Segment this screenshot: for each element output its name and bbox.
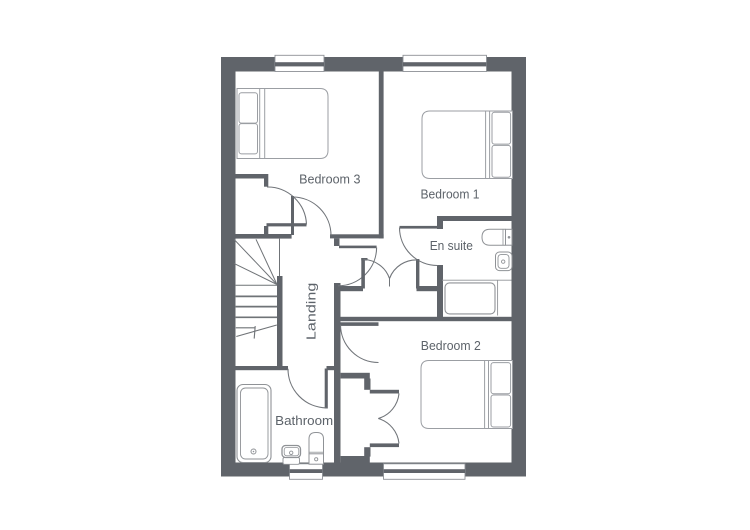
svg-text:En suite: En suite [430, 239, 473, 253]
svg-text:Landing: Landing [305, 283, 319, 340]
svg-text:Bedroom 3: Bedroom 3 [299, 172, 360, 186]
svg-text:Bedroom 1: Bedroom 1 [421, 188, 480, 202]
svg-text:Bedroom 2: Bedroom 2 [421, 339, 481, 353]
svg-text:Bathroom: Bathroom [275, 414, 333, 428]
